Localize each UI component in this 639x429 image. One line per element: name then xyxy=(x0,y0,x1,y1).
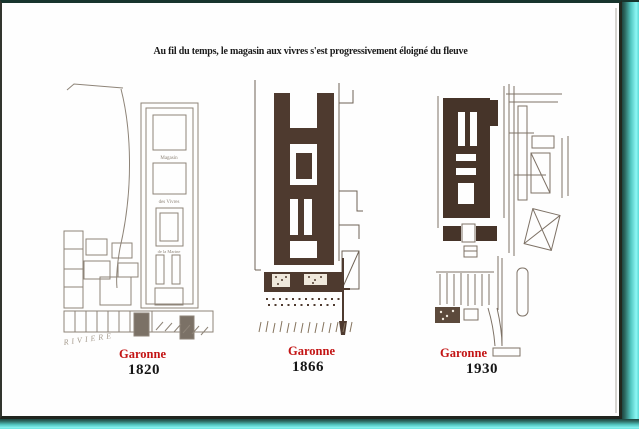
map-1930-drawing xyxy=(414,78,594,370)
caption-year-1866: 1866 xyxy=(292,360,324,375)
label-des-vivres: des Vivres xyxy=(159,200,180,205)
label-magasin: Magasin xyxy=(160,156,178,161)
page-edge-shadow xyxy=(615,8,617,413)
caption-year-1930: 1930 xyxy=(466,362,498,377)
caption-garonne-1930: Garonne xyxy=(440,347,487,360)
map-1820-drawing: Magasin des Vivres de la Marine RIVIERE xyxy=(60,73,218,353)
cyan-edge-right xyxy=(622,2,639,429)
label-riviere: RIVIERE xyxy=(62,331,115,347)
caption-garonne-1866: Garonne xyxy=(288,345,335,358)
document-page: Au fil du temps, le magasin aux vivres s… xyxy=(0,0,622,419)
cyan-edge-bottom xyxy=(0,419,639,429)
map-1866-drawing xyxy=(247,75,397,343)
label-de-la-marine: de la Marine xyxy=(158,249,181,254)
page-title: Au fil du temps, le magasin aux vivres s… xyxy=(2,46,619,57)
caption-year-1820: 1820 xyxy=(128,363,160,378)
caption-garonne-1820: Garonne xyxy=(119,348,166,361)
slide-frame: Au fil du temps, le magasin aux vivres s… xyxy=(0,0,639,429)
